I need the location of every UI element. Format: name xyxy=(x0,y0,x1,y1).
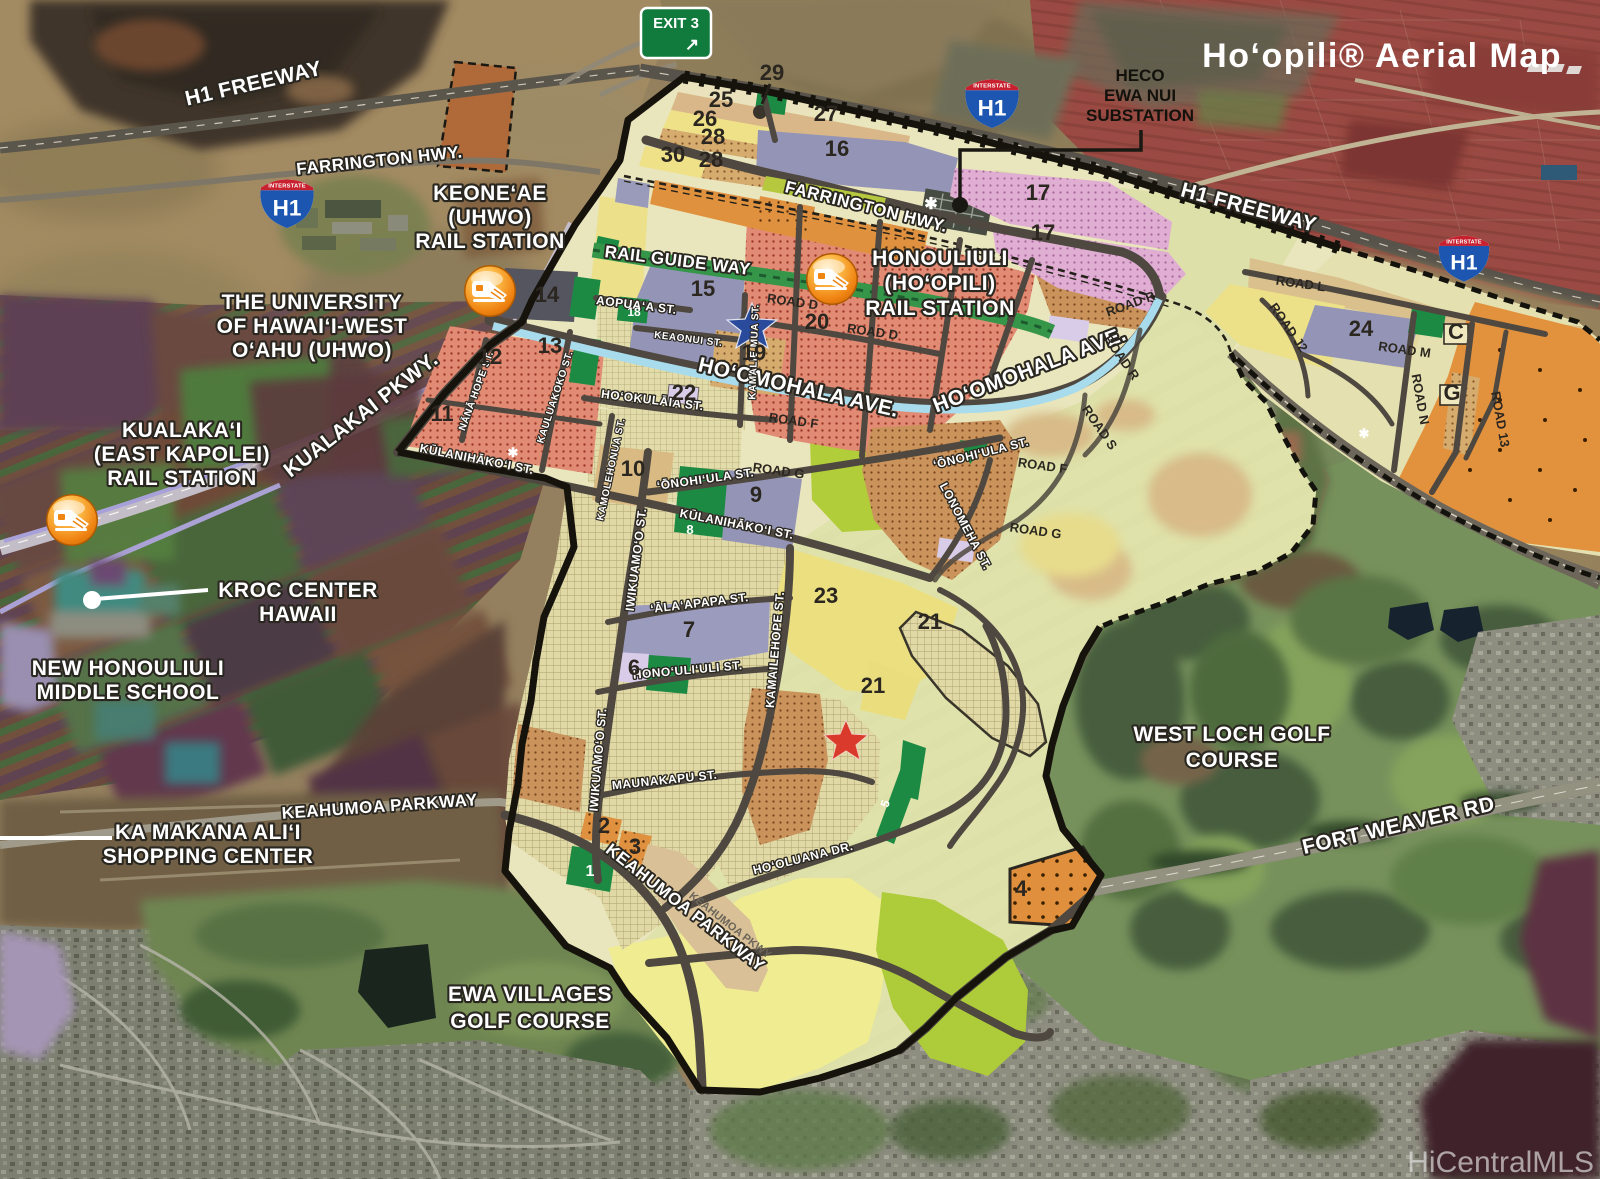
svg-text:THE UNIVERSITY: THE UNIVERSITY xyxy=(222,291,403,314)
svg-text:SHOPPING CENTER: SHOPPING CENTER xyxy=(103,845,314,868)
svg-text:17: 17 xyxy=(1026,180,1050,205)
svg-text:KROC CENTER: KROC CENTER xyxy=(218,579,378,602)
svg-text:EWA NUI: EWA NUI xyxy=(1104,86,1176,105)
svg-text:SUBSTATION: SUBSTATION xyxy=(1086,106,1194,125)
svg-text:RAIL STATION: RAIL STATION xyxy=(415,230,565,253)
svg-text:28: 28 xyxy=(701,124,725,149)
svg-text:17: 17 xyxy=(1031,220,1055,245)
svg-text:13: 13 xyxy=(538,333,562,358)
svg-text:30: 30 xyxy=(661,142,685,167)
svg-text:EWA VILLAGES: EWA VILLAGES xyxy=(448,983,612,1006)
svg-text:RAIL STATION: RAIL STATION xyxy=(865,297,1015,320)
svg-text:21: 21 xyxy=(918,609,942,634)
svg-text:1: 1 xyxy=(586,863,595,880)
svg-text:19: 19 xyxy=(742,340,766,365)
svg-text:↗: ↗ xyxy=(685,35,699,54)
svg-text:14: 14 xyxy=(535,282,560,307)
svg-text:27: 27 xyxy=(814,101,838,126)
svg-text:EXIT 3: EXIT 3 xyxy=(653,15,699,32)
svg-text:18: 18 xyxy=(627,305,641,319)
svg-text:2: 2 xyxy=(598,813,610,838)
svg-text:KUALAKAʻI: KUALAKAʻI xyxy=(122,419,242,442)
svg-text:6: 6 xyxy=(628,655,640,680)
svg-text:HiCentralMLS: HiCentralMLS xyxy=(1407,1146,1594,1179)
svg-text:(UHWO): (UHWO) xyxy=(448,206,531,229)
svg-text:✱: ✱ xyxy=(1359,426,1370,441)
svg-text:3: 3 xyxy=(629,834,641,859)
svg-text:(HOʻOPILI): (HOʻOPILI) xyxy=(884,272,995,295)
svg-text:C: C xyxy=(1448,319,1464,344)
svg-text:29: 29 xyxy=(760,60,784,85)
svg-text:9: 9 xyxy=(750,482,762,507)
svg-text:HONOULIULI: HONOULIULI xyxy=(872,247,1008,270)
svg-text:(EAST KAPOLEI): (EAST KAPOLEI) xyxy=(94,443,270,466)
svg-text:7: 7 xyxy=(683,617,695,642)
svg-text:G: G xyxy=(1443,380,1460,405)
svg-text:HECO: HECO xyxy=(1115,66,1164,85)
svg-text:22: 22 xyxy=(672,380,696,405)
svg-text:4: 4 xyxy=(1015,876,1028,901)
svg-text:COURSE: COURSE xyxy=(1186,749,1279,772)
svg-text:MIDDLE SCHOOL: MIDDLE SCHOOL xyxy=(37,681,220,704)
svg-text:NEW HONOULIULI: NEW HONOULIULI xyxy=(32,657,224,680)
svg-text:24: 24 xyxy=(1349,316,1374,341)
svg-text:HAWAII: HAWAII xyxy=(259,603,337,626)
svg-text:WEST LOCH GOLF: WEST LOCH GOLF xyxy=(1133,723,1330,746)
svg-text:Hoʻopili® Aerial Map: Hoʻopili® Aerial Map xyxy=(1202,37,1562,75)
svg-text:28: 28 xyxy=(699,147,723,172)
svg-text:11: 11 xyxy=(430,401,453,426)
svg-text:OʻAHU (UHWO): OʻAHU (UHWO) xyxy=(232,339,392,362)
svg-text:20: 20 xyxy=(805,309,829,334)
svg-text:KA MAKANA ALIʻI: KA MAKANA ALIʻI xyxy=(115,821,301,844)
svg-text:21: 21 xyxy=(861,673,885,698)
svg-text:15: 15 xyxy=(691,276,715,301)
svg-text:✱: ✱ xyxy=(924,196,937,213)
svg-text:12: 12 xyxy=(478,344,502,369)
svg-text:GOLF COURSE: GOLF COURSE xyxy=(450,1010,610,1033)
svg-text:10: 10 xyxy=(621,456,645,481)
svg-text:RAIL STATION: RAIL STATION xyxy=(107,467,257,490)
svg-text:23: 23 xyxy=(814,583,838,608)
svg-text:KEONEʻAE: KEONEʻAE xyxy=(433,182,547,205)
svg-text:16: 16 xyxy=(825,136,849,161)
svg-text:OF HAWAIʻI-WEST: OF HAWAIʻI-WEST xyxy=(217,315,408,338)
svg-text:8: 8 xyxy=(686,522,693,537)
